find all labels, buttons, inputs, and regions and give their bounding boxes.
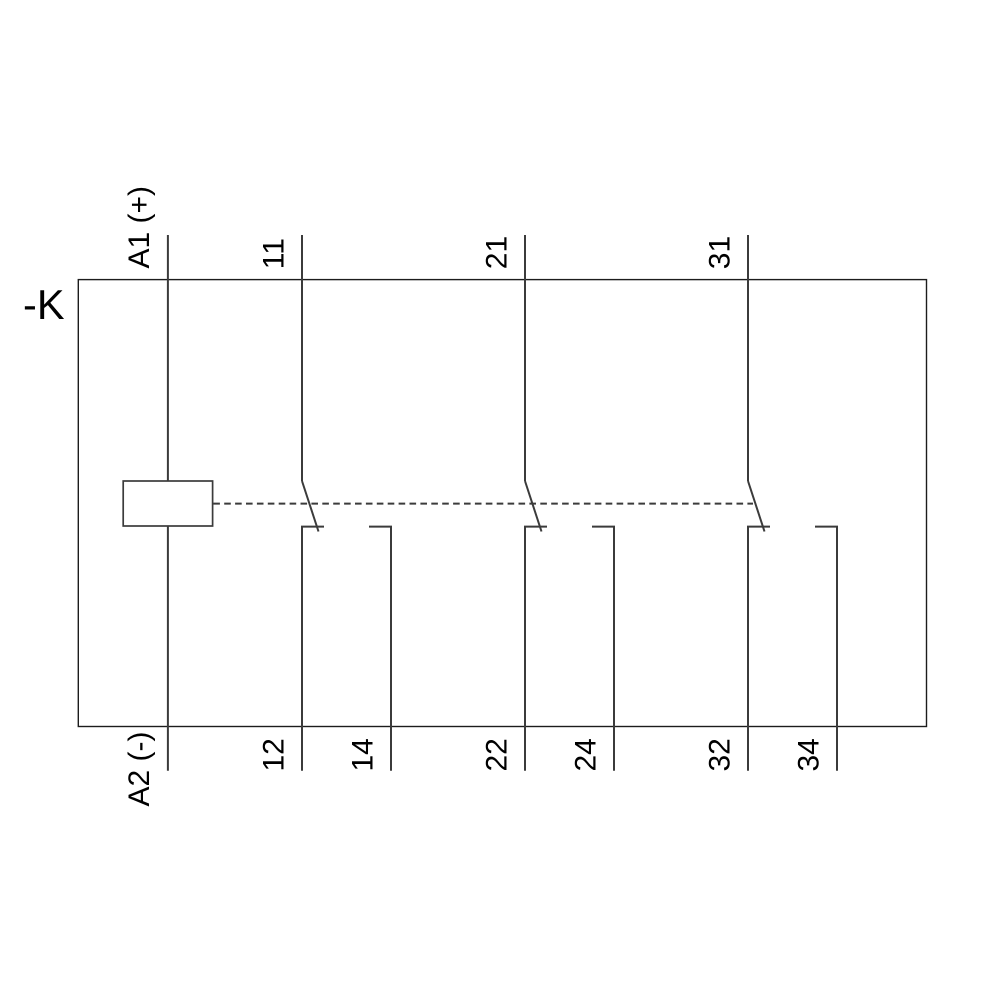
svg-text:31: 31 — [704, 236, 737, 269]
svg-text:32: 32 — [704, 738, 737, 771]
svg-text:14: 14 — [347, 738, 380, 771]
svg-text:12: 12 — [258, 738, 291, 771]
svg-text:34: 34 — [793, 738, 826, 771]
svg-text:-K: -K — [23, 281, 65, 328]
svg-text:24: 24 — [570, 738, 603, 771]
svg-text:21: 21 — [481, 236, 514, 269]
svg-text:22: 22 — [481, 738, 514, 771]
svg-text:11: 11 — [258, 238, 291, 269]
svg-text:A2 (-): A2 (-) — [123, 732, 156, 807]
svg-text:A1 (+): A1 (+) — [123, 186, 156, 269]
